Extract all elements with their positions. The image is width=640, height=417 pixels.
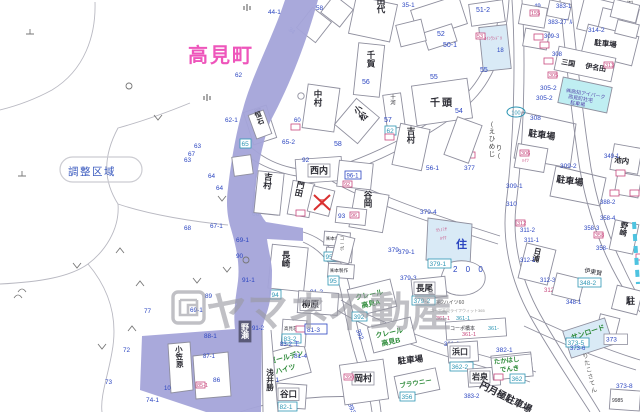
- svg-text:69-1: 69-1: [236, 237, 249, 244]
- svg-text:358-3: 358-3: [584, 226, 600, 232]
- svg-text:309-1: 309-1: [506, 183, 523, 190]
- svg-text:373: 373: [606, 336, 617, 343]
- svg-text:44-1: 44-1: [268, 9, 281, 16]
- svg-text:岩泉: 岩泉: [471, 372, 489, 382]
- svg-text:谷岡: 谷岡: [363, 190, 373, 209]
- svg-text:中村: 中村: [314, 89, 323, 108]
- svg-text:92: 92: [302, 157, 310, 164]
- svg-text:348-1: 348-1: [566, 300, 582, 306]
- svg-text:千頭: 千頭: [430, 96, 454, 109]
- svg-text:81-4: 81-4: [294, 353, 307, 360]
- svg-text:54: 54: [455, 108, 463, 115]
- svg-text:ｺｲﾝﾗﾝﾄﾞﾘ: ｺｲﾝﾗﾝﾄﾞﾘ: [484, 35, 502, 41]
- svg-text:住: 住: [456, 237, 467, 251]
- svg-text:349-1: 349-1: [604, 154, 620, 160]
- svg-text:96-1: 96-1: [347, 174, 360, 180]
- svg-text:コーポ橋本: コーポ橋本: [450, 325, 475, 332]
- svg-text:ヤマネ不動産: ヤマネ不動産: [206, 289, 452, 335]
- svg-text:72: 72: [123, 347, 131, 354]
- svg-text:83-2 王: 83-2 王: [280, 341, 300, 348]
- svg-text:千賀: 千賀: [366, 50, 376, 69]
- svg-text:96: 96: [351, 213, 357, 219]
- svg-text:361-: 361-: [488, 326, 499, 332]
- svg-text:311-1: 311-1: [524, 238, 540, 244]
- svg-text:58: 58: [316, 5, 324, 12]
- svg-text:田代: 田代: [376, 0, 386, 15]
- svg-text:62: 62: [235, 72, 243, 79]
- svg-text:18: 18: [497, 48, 504, 54]
- svg-text:52: 52: [437, 31, 445, 38]
- svg-text:310: 310: [506, 201, 517, 208]
- svg-text:63: 63: [184, 157, 192, 164]
- svg-text:吉村: 吉村: [407, 126, 416, 145]
- svg-text:86: 86: [213, 377, 221, 384]
- svg-text:50-1: 50-1: [443, 42, 457, 49]
- svg-text:311-2: 311-2: [520, 228, 536, 234]
- svg-text:379-1: 379-1: [430, 261, 447, 268]
- svg-text:390: 390: [345, 375, 354, 381]
- svg-text:87-1: 87-1: [203, 354, 216, 360]
- svg-text:93: 93: [338, 213, 346, 220]
- svg-text:388-2: 388-2: [600, 200, 616, 206]
- svg-text:362: 362: [512, 376, 523, 383]
- svg-text:9985: 9985: [612, 398, 623, 404]
- svg-text:85-1: 85-1: [197, 383, 208, 389]
- svg-text:379: 379: [388, 247, 399, 254]
- svg-text:305-2: 305-2: [536, 95, 553, 102]
- svg-text:60: 60: [294, 118, 301, 124]
- svg-text:358-: 358-: [596, 246, 608, 252]
- svg-text:西内: 西内: [310, 164, 328, 175]
- svg-text:10: 10: [164, 386, 171, 392]
- svg-text:56: 56: [362, 79, 370, 86]
- svg-text:長崎: 長崎: [282, 250, 291, 269]
- svg-text:358-4: 358-4: [600, 216, 616, 222]
- svg-text:383-1: 383-1: [556, 4, 572, 10]
- svg-text:95: 95: [330, 278, 338, 285]
- svg-text:浜口: 浜口: [452, 347, 468, 357]
- svg-text:51-2: 51-2: [476, 7, 490, 14]
- svg-text:67: 67: [188, 151, 196, 158]
- svg-text:379-1: 379-1: [398, 249, 415, 256]
- svg-text:谷口: 谷口: [279, 389, 297, 399]
- svg-text:63: 63: [194, 143, 202, 150]
- svg-text:55: 55: [430, 74, 438, 81]
- svg-text:373-6: 373-6: [570, 346, 586, 352]
- svg-text:305: 305: [549, 73, 558, 79]
- svg-text:64: 64: [208, 173, 216, 180]
- svg-text:駐: 駐: [626, 295, 635, 306]
- svg-text:65: 65: [242, 141, 250, 148]
- svg-text:305-2: 305-2: [540, 85, 557, 92]
- svg-text:調整区域: 調整区域: [68, 165, 116, 178]
- svg-text:312-1: 312-1: [520, 258, 536, 264]
- svg-text:62-1: 62-1: [225, 117, 238, 124]
- svg-text:ﾊｲﾂ: ﾊｲﾂ: [522, 158, 529, 163]
- svg-text:高見町: 高見町: [188, 43, 254, 67]
- svg-text:348-2: 348-2: [580, 280, 597, 287]
- svg-text:コーポ: コーポ: [340, 236, 345, 251]
- svg-text:92: 92: [344, 182, 350, 188]
- svg-text:383-2ﾌﾞﾙ: 383-2ﾌﾞﾙ: [548, 19, 572, 26]
- svg-text:2 0 0: 2 0 0: [453, 265, 486, 274]
- svg-text:64: 64: [216, 185, 224, 192]
- svg-text:53: 53: [477, 34, 483, 40]
- svg-text:358: 358: [595, 233, 604, 239]
- svg-text:90: 90: [236, 253, 244, 260]
- svg-text:57: 57: [384, 117, 392, 124]
- svg-text:312-3: 312-3: [540, 278, 556, 284]
- svg-text:73: 73: [105, 379, 113, 386]
- svg-text:373-8: 373-8: [616, 383, 633, 390]
- svg-text:35-1: 35-1: [402, 2, 415, 9]
- svg-text:68: 68: [184, 225, 192, 232]
- svg-text:91-1: 91-1: [242, 277, 255, 284]
- svg-text:383-2: 383-2: [464, 394, 480, 400]
- svg-text:岡村: 岡村: [354, 372, 372, 383]
- svg-text:309-3: 309-3: [544, 34, 560, 40]
- svg-text:十河: 十河: [390, 93, 396, 107]
- svg-text:308: 308: [552, 52, 563, 58]
- svg-text:356: 356: [402, 394, 413, 401]
- svg-text:362-2: 362-2: [452, 364, 469, 371]
- svg-text:浅井勝: 浅井勝: [266, 367, 274, 392]
- svg-text:379-4: 379-4: [420, 209, 437, 216]
- svg-text:361-1: 361-1: [462, 332, 476, 338]
- svg-text:361-1: 361-1: [456, 316, 470, 322]
- svg-text:312: 312: [517, 221, 526, 227]
- svg-text:82-1: 82-1: [280, 404, 293, 411]
- svg-text:309-2: 309-2: [560, 163, 577, 170]
- svg-text:100: 100: [511, 111, 520, 117]
- svg-text:㈱本製作: ㈱本製作: [330, 267, 348, 274]
- svg-text:67-1: 67-1: [210, 223, 223, 230]
- svg-text:306: 306: [521, 151, 530, 157]
- svg-text:155: 155: [531, 11, 540, 17]
- svg-text:58: 58: [334, 141, 342, 148]
- svg-text:74-1: 74-1: [146, 397, 159, 404]
- svg-text:377: 377: [464, 165, 475, 172]
- svg-text:77: 77: [144, 308, 152, 315]
- svg-text:313: 313: [605, 63, 614, 69]
- svg-text:55: 55: [480, 67, 488, 74]
- svg-text:308: 308: [530, 115, 541, 122]
- svg-text:65-2: 65-2: [282, 139, 295, 146]
- svg-text:382-1: 382-1: [496, 347, 513, 354]
- svg-text:314-2: 314-2: [588, 27, 605, 34]
- svg-text:56-1: 56-1: [426, 165, 439, 172]
